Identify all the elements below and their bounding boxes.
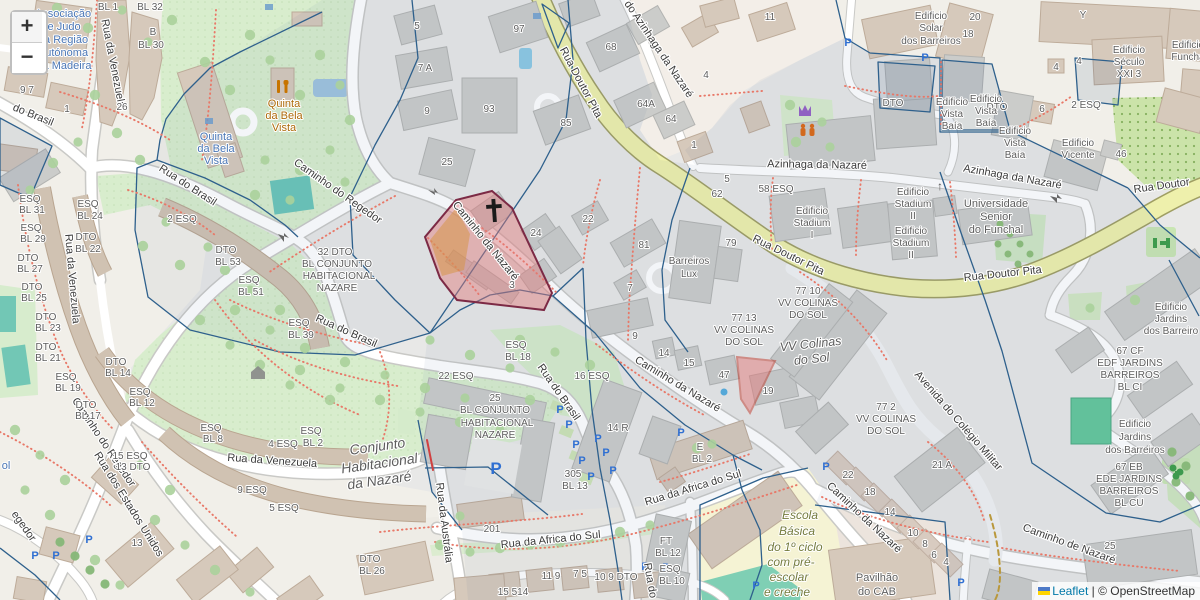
svg-text:DTO: DTO xyxy=(106,357,127,368)
svg-text:9 ESQ: 9 ESQ xyxy=(237,485,267,496)
svg-text:BL 31: BL 31 xyxy=(19,205,45,216)
svg-text:ESQ: ESQ xyxy=(300,426,321,437)
svg-text:ESQ: ESQ xyxy=(19,194,40,205)
svg-text:4: 4 xyxy=(1076,56,1082,67)
svg-text:64A: 64A xyxy=(637,99,655,110)
svg-text:ESQ: ESQ xyxy=(238,275,259,286)
svg-text:BL 17: BL 17 xyxy=(75,411,101,422)
svg-text:P: P xyxy=(752,580,759,592)
svg-text:Edificio: Edificio xyxy=(897,187,930,198)
svg-text:10: 10 xyxy=(907,528,919,539)
svg-text:77 10: 77 10 xyxy=(795,286,820,297)
svg-text:ESQ: ESQ xyxy=(55,372,76,383)
svg-text:25: 25 xyxy=(1104,541,1116,552)
svg-text:Universidade: Universidade xyxy=(964,198,1028,210)
svg-text:dos Barreiros: dos Barreiros xyxy=(1105,445,1164,456)
svg-text:Baía: Baía xyxy=(942,121,963,132)
svg-text:da Bela: da Bela xyxy=(265,110,303,122)
svg-text:Quinta: Quinta xyxy=(268,98,301,110)
svg-text:93: 93 xyxy=(483,104,495,115)
svg-text:2 ESQ: 2 ESQ xyxy=(167,214,197,225)
svg-text:BL 18: BL 18 xyxy=(505,352,531,363)
svg-text:Edificio: Edificio xyxy=(915,11,948,22)
svg-text:97: 97 xyxy=(513,24,525,35)
svg-text:B: B xyxy=(150,27,157,38)
svg-text:Pavilhão: Pavilhão xyxy=(856,572,898,584)
svg-text:26: 26 xyxy=(116,102,128,113)
svg-text:II: II xyxy=(908,250,914,261)
svg-text:BL 24: BL 24 xyxy=(77,211,103,222)
svg-text:BL 14: BL 14 xyxy=(105,368,131,379)
svg-text:85: 85 xyxy=(560,118,572,129)
svg-text:BL 53: BL 53 xyxy=(215,257,241,268)
svg-text:BL 8: BL 8 xyxy=(203,434,224,445)
svg-text:ESQ: ESQ xyxy=(659,564,680,575)
svg-text:e creche: e creche xyxy=(764,585,810,599)
svg-text:P: P xyxy=(609,465,616,477)
svg-text:P: P xyxy=(921,52,928,64)
svg-text:Baía: Baía xyxy=(1005,150,1026,161)
svg-text:64: 64 xyxy=(665,114,677,125)
svg-text:201: 201 xyxy=(484,524,501,535)
svg-text:Senior: Senior xyxy=(980,211,1012,223)
svg-text:DTO: DTO xyxy=(36,312,57,323)
svg-text:47: 47 xyxy=(718,370,730,381)
svg-text:P: P xyxy=(85,534,92,546)
svg-text:escolar: escolar xyxy=(770,570,810,584)
svg-text:P: P xyxy=(572,439,579,451)
svg-text:BL CI: BL CI xyxy=(1118,382,1143,393)
svg-text:Stadium: Stadium xyxy=(893,238,930,249)
svg-text:Edificio: Edificio xyxy=(895,226,928,237)
svg-text:14: 14 xyxy=(658,348,670,359)
svg-text:Quinta: Quinta xyxy=(200,131,233,143)
svg-text:BL 26: BL 26 xyxy=(359,566,385,577)
svg-text:BL 19: BL 19 xyxy=(55,383,81,394)
svg-text:E: E xyxy=(697,442,704,453)
svg-text:20: 20 xyxy=(969,12,981,23)
svg-text:VV COLINAS: VV COLINAS xyxy=(778,298,838,309)
svg-text:do CAB: do CAB xyxy=(858,586,896,598)
svg-text:Escola: Escola xyxy=(782,508,818,522)
svg-text:DTO: DTO xyxy=(36,342,57,353)
svg-text:BL 22: BL 22 xyxy=(75,244,101,255)
svg-text:dos Barreiro: dos Barreiro xyxy=(1144,326,1199,337)
svg-text:Edificio: Edificio xyxy=(1113,45,1146,56)
svg-text:com pré-: com pré- xyxy=(767,555,814,569)
svg-text:68: 68 xyxy=(605,42,617,53)
svg-text:Lux: Lux xyxy=(681,269,697,280)
svg-text:7 5: 7 5 xyxy=(573,569,587,580)
svg-text:Barreiros: Barreiros xyxy=(669,256,710,267)
svg-text:Solar: Solar xyxy=(919,23,943,34)
svg-text:ESQ: ESQ xyxy=(200,423,221,434)
svg-text:Vista: Vista xyxy=(975,106,997,117)
svg-text:21 A: 21 A xyxy=(932,460,952,471)
svg-text:P: P xyxy=(587,471,594,483)
svg-text:Vicente: Vicente xyxy=(1061,150,1095,161)
svg-text:EDE JARDINS: EDE JARDINS xyxy=(1096,474,1162,485)
svg-text:Azinhaga da Nazaré: Azinhaga da Nazaré xyxy=(767,158,867,172)
svg-text:P: P xyxy=(602,447,609,459)
svg-text:Edificio: Edificio xyxy=(1062,138,1095,149)
svg-text:BARREIROS: BARREIROS xyxy=(1101,370,1160,381)
svg-text:4: 4 xyxy=(943,557,949,568)
svg-text:9 7: 9 7 xyxy=(20,85,34,96)
svg-text:P: P xyxy=(957,577,964,589)
svg-text:BL 13: BL 13 xyxy=(562,481,588,492)
svg-text:BL CONJUNTO: BL CONJUNTO xyxy=(302,259,372,270)
svg-text:DO SOL: DO SOL xyxy=(867,426,905,437)
svg-text:Stadium: Stadium xyxy=(794,218,831,229)
svg-text:EDF JARDINS: EDF JARDINS xyxy=(1097,358,1163,369)
svg-text:22 ESQ: 22 ESQ xyxy=(438,371,473,382)
svg-text:BL CONJUNTO: BL CONJUNTO xyxy=(460,405,530,416)
svg-text:ESQ: ESQ xyxy=(288,318,309,329)
svg-text:Edificio: Edificio xyxy=(796,206,829,217)
svg-text:DTO: DTO xyxy=(22,282,43,293)
svg-text:Edificio: Edificio xyxy=(999,126,1032,137)
svg-text:ol: ol xyxy=(2,460,11,472)
svg-text:25: 25 xyxy=(489,393,501,404)
svg-text:ESQ: ESQ xyxy=(129,387,150,398)
svg-text:do 1º ciclo: do 1º ciclo xyxy=(767,540,822,554)
svg-text:FT: FT xyxy=(660,536,672,547)
svg-text:ESQ: ESQ xyxy=(20,223,41,234)
svg-text:58 ESQ: 58 ESQ xyxy=(758,184,793,195)
svg-text:3: 3 xyxy=(509,280,515,291)
svg-text:32 DTO: 32 DTO xyxy=(318,247,353,258)
svg-text:NAZARE: NAZARE xyxy=(317,283,358,294)
svg-text:DO SOL: DO SOL xyxy=(789,310,827,321)
svg-text:77 13: 77 13 xyxy=(731,313,756,324)
svg-text:ESQ: ESQ xyxy=(505,340,526,351)
svg-text:BL 12: BL 12 xyxy=(129,398,155,409)
svg-text:Século: Século xyxy=(1114,57,1145,68)
svg-text:46: 46 xyxy=(1115,149,1127,160)
svg-text:P: P xyxy=(844,37,851,49)
svg-text:DTO: DTO xyxy=(360,554,381,565)
svg-text:P: P xyxy=(490,459,501,478)
svg-text:25: 25 xyxy=(441,157,453,168)
svg-text:BL 30: BL 30 xyxy=(138,40,164,51)
svg-text:7: 7 xyxy=(627,283,633,294)
svg-text:DTO: DTO xyxy=(76,400,97,411)
svg-text:da Bela: da Bela xyxy=(197,143,235,155)
svg-text:DTO: DTO xyxy=(76,232,97,243)
svg-text:14 R: 14 R xyxy=(607,423,628,434)
svg-text:9: 9 xyxy=(424,106,430,117)
svg-text:24: 24 xyxy=(530,228,542,239)
svg-text:do Funchal: do Funchal xyxy=(969,224,1023,236)
svg-text:Vista: Vista xyxy=(272,122,297,134)
svg-text:15: 15 xyxy=(683,358,695,369)
svg-text:HABITACIONAL: HABITACIONAL xyxy=(461,418,534,429)
svg-text:9: 9 xyxy=(632,331,638,342)
svg-text:2 ESQ: 2 ESQ xyxy=(1071,100,1101,111)
svg-text:305: 305 xyxy=(565,469,582,480)
svg-text:BL 10: BL 10 xyxy=(659,576,685,587)
svg-text:1: 1 xyxy=(691,140,697,151)
svg-text:BL 2: BL 2 xyxy=(303,438,324,449)
svg-text:4 ESQ: 4 ESQ xyxy=(268,439,298,450)
svg-text:13 DTO: 13 DTO xyxy=(116,462,151,473)
svg-text:11 9: 11 9 xyxy=(542,571,561,582)
svg-text:Baía: Baía xyxy=(976,118,997,129)
svg-text:VV COLINAS: VV COLINAS xyxy=(856,414,916,425)
svg-text:BL 25: BL 25 xyxy=(21,293,47,304)
svg-text:79: 79 xyxy=(725,238,737,249)
svg-text:DTO: DTO xyxy=(883,98,904,109)
svg-text:77 2: 77 2 xyxy=(876,402,896,413)
svg-text:Edificio: Edificio xyxy=(1155,302,1188,313)
svg-text:Edificio: Edificio xyxy=(1172,40,1200,51)
svg-text:4: 4 xyxy=(703,70,709,81)
svg-text:11: 11 xyxy=(765,12,776,23)
svg-text:Funcha: Funcha xyxy=(1171,52,1200,63)
svg-text:15 514: 15 514 xyxy=(498,587,529,598)
svg-text:Básica: Básica xyxy=(779,524,815,538)
svg-text:19: 19 xyxy=(762,386,774,397)
svg-text:13: 13 xyxy=(131,538,143,549)
svg-text:67 EB: 67 EB xyxy=(1115,462,1143,473)
svg-text:5 ESQ: 5 ESQ xyxy=(269,503,299,514)
svg-text:DTO: DTO xyxy=(216,245,237,256)
svg-text:BL 21: BL 21 xyxy=(35,353,61,364)
svg-text:6: 6 xyxy=(931,550,937,561)
svg-text:HABITACIONAL: HABITACIONAL xyxy=(303,271,376,282)
svg-text:P: P xyxy=(677,427,684,439)
svg-text:4: 4 xyxy=(1053,62,1059,73)
svg-text:BL 12: BL 12 xyxy=(655,548,681,559)
svg-text:DO SOL: DO SOL xyxy=(725,337,763,348)
svg-text:VV COLINAS: VV COLINAS xyxy=(714,325,774,336)
svg-text:Jardins: Jardins xyxy=(1155,314,1187,325)
svg-text:BL 51: BL 51 xyxy=(238,287,264,298)
svg-text:22: 22 xyxy=(582,214,594,225)
svg-text:Stadium: Stadium xyxy=(895,199,932,210)
svg-text:Vista: Vista xyxy=(204,155,229,167)
svg-text:5: 5 xyxy=(724,174,730,185)
svg-text:6: 6 xyxy=(1039,104,1045,115)
svg-text:67 CF: 67 CF xyxy=(1116,346,1143,357)
svg-text:62: 62 xyxy=(711,189,723,200)
svg-text:P: P xyxy=(594,433,601,445)
svg-text:BL 23: BL 23 xyxy=(35,323,61,334)
svg-text:BL 32: BL 32 xyxy=(137,2,163,13)
svg-text:Edificio: Edificio xyxy=(1119,419,1152,430)
svg-text:NAZARE: NAZARE xyxy=(475,430,516,441)
svg-text:P: P xyxy=(52,550,59,562)
svg-text:Edificio: Edificio xyxy=(936,97,969,108)
svg-text:Vista: Vista xyxy=(941,109,963,120)
svg-text:XXI 3: XXI 3 xyxy=(1117,69,1142,80)
svg-text:81: 81 xyxy=(638,240,650,251)
svg-text:16 ESQ: 16 ESQ xyxy=(574,371,609,382)
svg-text:Vista: Vista xyxy=(1004,138,1026,149)
svg-text:P: P xyxy=(31,550,38,562)
svg-text:BL 29: BL 29 xyxy=(20,234,46,245)
svg-text:BARREIROS: BARREIROS xyxy=(1100,486,1159,497)
svg-text:BL CU: BL CU xyxy=(1114,498,1143,509)
svg-text:Jardins: Jardins xyxy=(1119,432,1151,443)
svg-text:BL 39: BL 39 xyxy=(288,330,314,341)
svg-text:P: P xyxy=(822,461,829,473)
svg-text:DTO: DTO xyxy=(18,253,39,264)
svg-text:↑: ↑ xyxy=(937,179,943,193)
svg-text:7 A: 7 A xyxy=(418,63,433,74)
svg-text:II: II xyxy=(910,211,916,222)
svg-text:I: I xyxy=(811,230,814,241)
svg-text:Edificio: Edificio xyxy=(970,94,1003,105)
svg-text:dos Barreiros: dos Barreiros xyxy=(901,36,960,47)
svg-text:BL 1: BL 1 xyxy=(98,2,119,13)
svg-text:15 ESQ: 15 ESQ xyxy=(112,451,147,462)
svg-text:18: 18 xyxy=(864,487,876,498)
svg-text:P: P xyxy=(578,455,585,467)
svg-text:1: 1 xyxy=(64,104,70,115)
svg-text:5: 5 xyxy=(414,21,420,32)
svg-text:Y: Y xyxy=(1080,10,1087,21)
svg-text:BL 2: BL 2 xyxy=(692,454,713,465)
svg-text:22: 22 xyxy=(842,470,854,481)
svg-text:10 9 DTO: 10 9 DTO xyxy=(594,572,637,583)
svg-text:18: 18 xyxy=(962,29,974,40)
svg-text:14: 14 xyxy=(884,507,896,518)
svg-text:BL 27: BL 27 xyxy=(17,264,43,275)
svg-text:ESQ: ESQ xyxy=(77,199,98,210)
svg-text:8: 8 xyxy=(922,539,928,550)
